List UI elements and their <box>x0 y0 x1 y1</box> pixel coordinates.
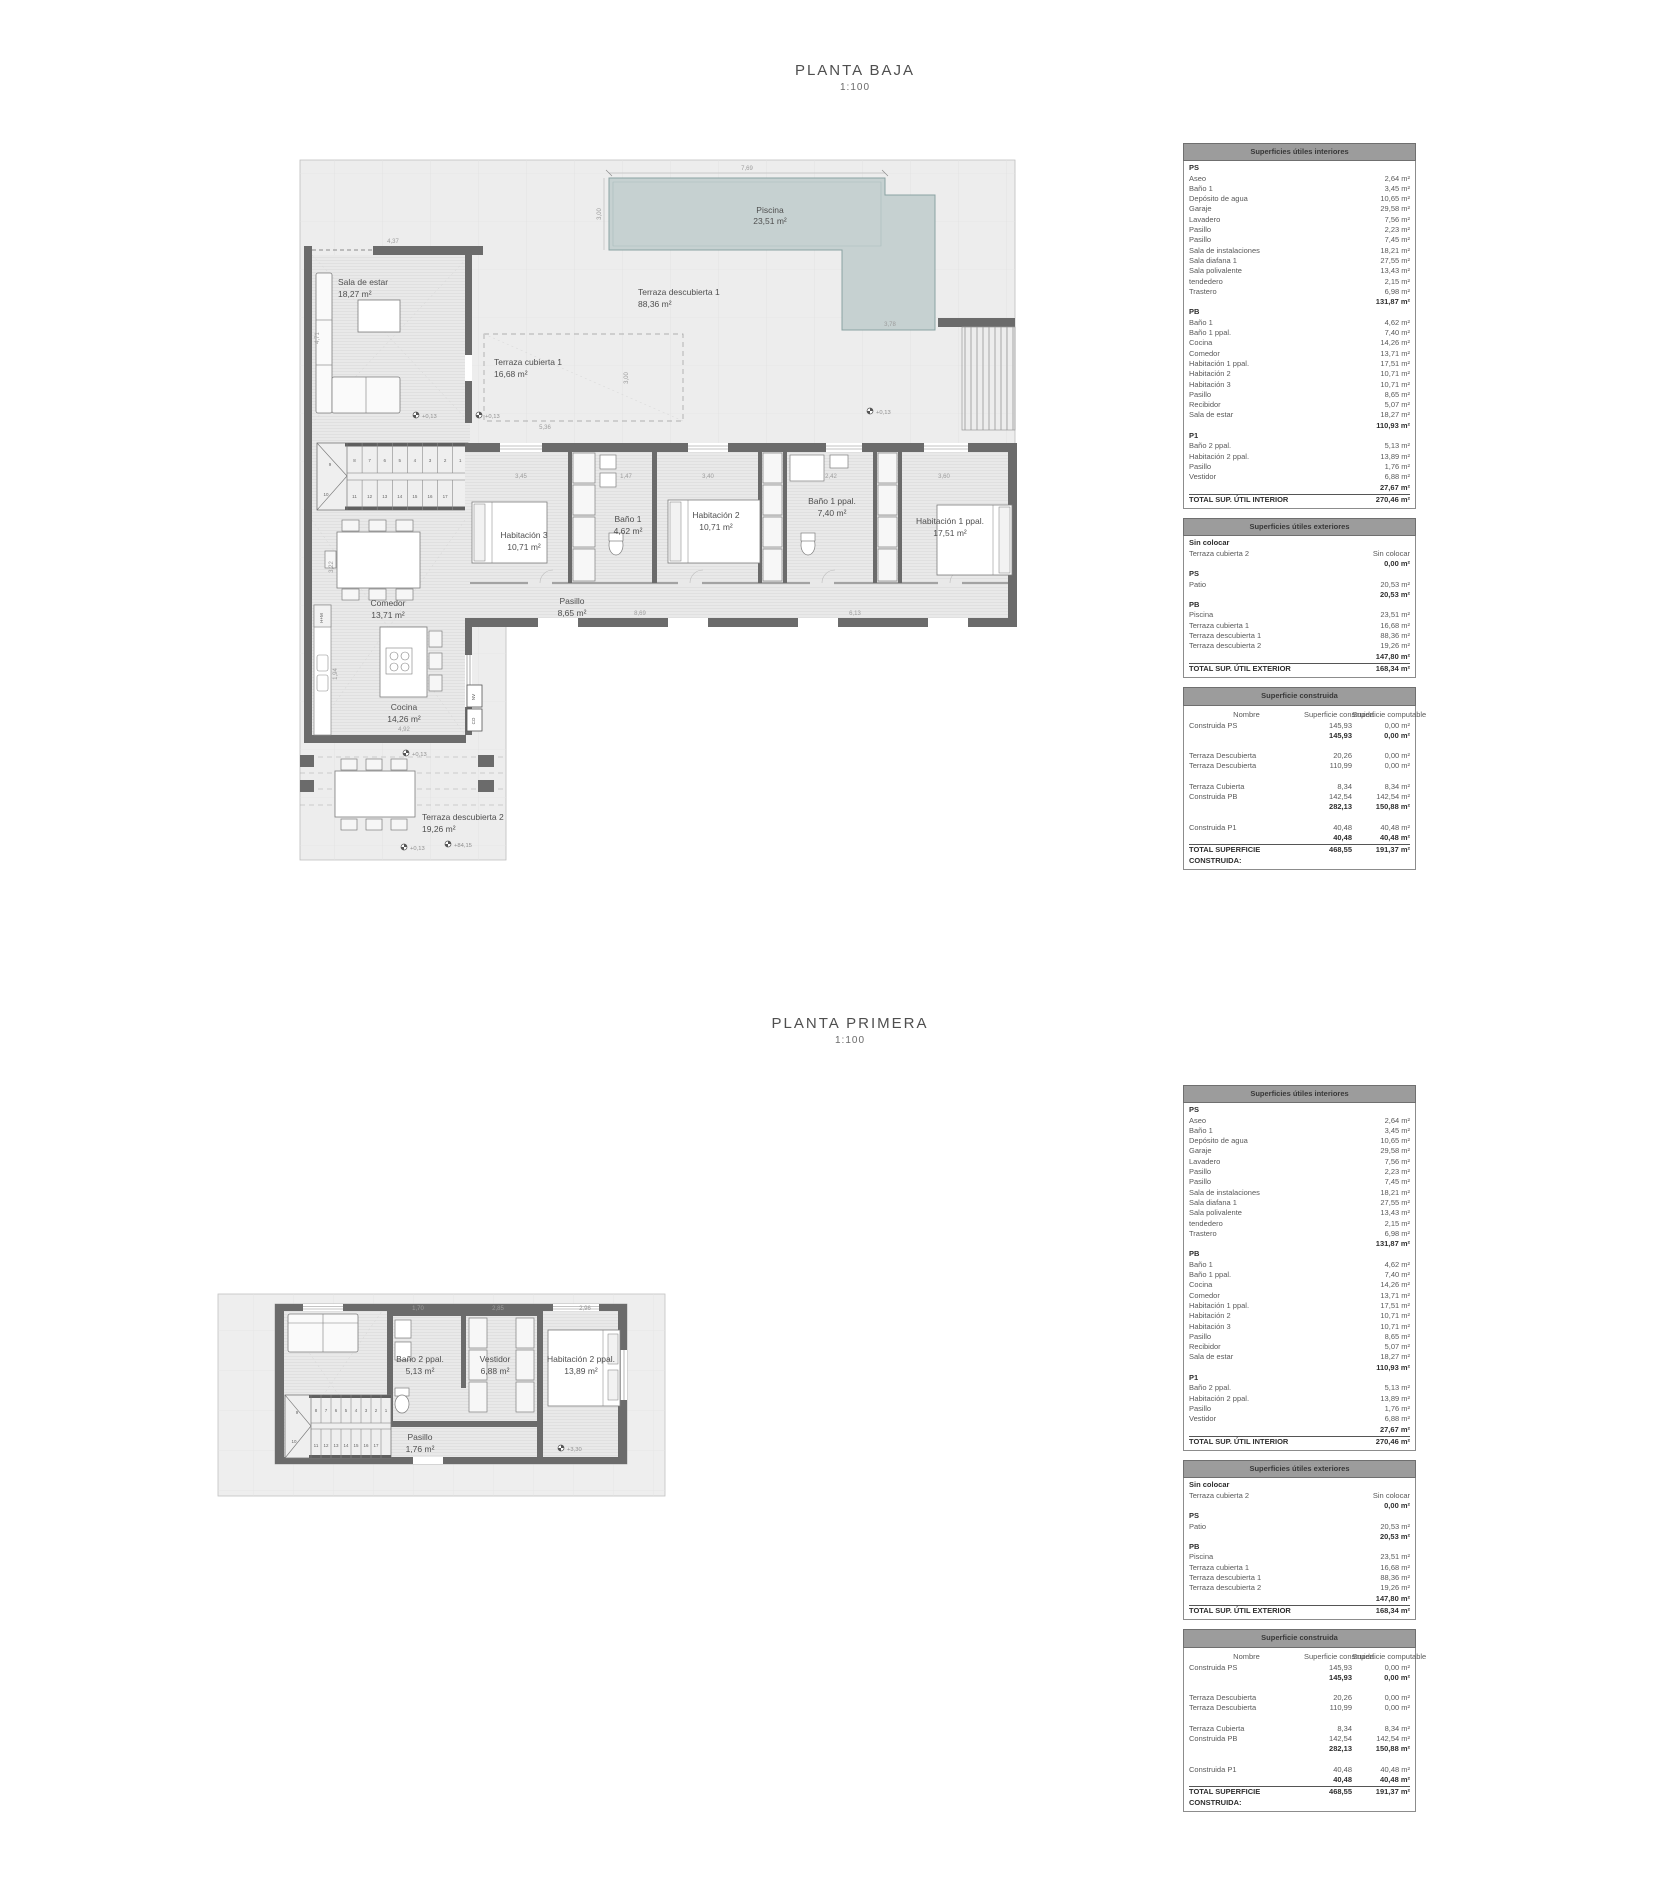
room-area-bano1: 4,62 m² <box>614 526 643 536</box>
table-title: Superficies útiles exteriores <box>1183 518 1416 536</box>
table-subtotal-row: 131,87 m² <box>1189 1239 1410 1249</box>
room-label-bano1ppal: Baño 1 ppal. <box>808 496 856 506</box>
table-section-row: Sin colocar <box>1189 538 1410 548</box>
table-body: Sin colocarTerraza cubierta 2Sin colocar… <box>1183 536 1416 678</box>
table-row: Pasillo7,45 m² <box>1189 235 1410 245</box>
elev-013: +0,13 <box>876 410 891 416</box>
table-row: Aseo2,64 m² <box>1189 174 1410 184</box>
bedroom-wing: Habitación 3 10,71 m² Baño 1 4,62 m² Hab… <box>465 443 1017 627</box>
table-body: Sin colocarTerraza cubierta 2Sin colocar… <box>1183 1478 1416 1620</box>
table-row: Terraza Descubierta20,260,00 m² <box>1189 1693 1410 1703</box>
dim-comedor-h: 3,22 <box>329 561 335 573</box>
table-subtotal-row: 20,53 m² <box>1189 1532 1410 1542</box>
room-label-td2: Terraza descubierta 2 <box>422 812 504 822</box>
table-row: Terraza Descubierta20,260,00 m² <box>1189 751 1410 761</box>
table-row: Pasillo2,23 m² <box>1189 225 1410 235</box>
table-section-row: PS <box>1189 163 1410 173</box>
room-label-bano1: Baño 1 <box>615 514 642 524</box>
plan-title-planta-baja: PLANTA BAJA <box>755 62 955 79</box>
table-subtotal-row: 0,00 m² <box>1189 559 1410 569</box>
room-label-pasillo-p1: Pasillo <box>407 1432 432 1442</box>
table-body: NombreSuperficie construidaSuperficie co… <box>1183 1648 1416 1812</box>
surface-table: Superficies útiles exterioresSin colocar… <box>1183 1460 1416 1620</box>
dim-hab1ppal-d: 6,13 <box>849 611 861 617</box>
stair-number: 14 <box>343 1443 349 1448</box>
room-label-td1: Terraza descubierta 1 <box>638 287 720 297</box>
table-section-row: PB <box>1189 600 1410 610</box>
dim-tc1-width: 5,36 <box>539 425 551 431</box>
table-total-row: TOTAL SUPERFICIE CONSTRUIDA:468,55191,37… <box>1189 844 1410 866</box>
room-label-piscina: Piscina <box>756 205 784 215</box>
table-row: Lavadero7,56 m² <box>1189 1157 1410 1167</box>
table-subtotal-row: 40,4840,48 m² <box>1189 1775 1410 1785</box>
surface-table: Superficie construidaNombreSuperficie co… <box>1183 1629 1416 1812</box>
planta-primera-drawing: 8765432111121314151617910 <box>213 1290 673 1505</box>
room-area-bano2ppal: 5,13 m² <box>406 1366 435 1376</box>
dim-bano1: 1,47 <box>620 474 632 480</box>
table-row: Terraza cubierta 2Sin colocar <box>1189 1491 1410 1501</box>
elev-013: +0,13 <box>412 752 427 758</box>
room-area-pasillo-p1: 1,76 m² <box>406 1444 435 1454</box>
table-subtotal-row: 20,53 m² <box>1189 590 1410 600</box>
wall-bottom-wing <box>306 735 466 743</box>
table-subtotal-row: 110,93 m² <box>1189 421 1410 431</box>
table-column-headers: NombreSuperficie construidaSuperficie co… <box>1189 1650 1410 1663</box>
table-row: Habitación 310,71 m² <box>1189 380 1410 390</box>
stair-number: 11 <box>352 494 357 499</box>
table-row: Trastero6,98 m² <box>1189 1229 1410 1239</box>
elev-013: +0,13 <box>422 414 437 420</box>
room-label-hab2: Habitación 2 <box>692 510 740 520</box>
table-row: Construida P140,4840,48 m² <box>1189 1765 1410 1775</box>
table-column-headers: NombreSuperficie construidaSuperficie co… <box>1189 708 1410 721</box>
table-row: Terraza descubierta 188,36 m² <box>1189 631 1410 641</box>
room-area-cocina: 14,26 m² <box>387 714 421 724</box>
table-total-row: TOTAL SUP. ÚTIL EXTERIOR168,34 m² <box>1189 663 1410 674</box>
table-row: Habitación 2 ppal.13,89 m² <box>1189 452 1410 462</box>
table-row: Aseo2,64 m² <box>1189 1116 1410 1126</box>
table-subtotal-row: 0,00 m² <box>1189 1501 1410 1511</box>
table-subtotal-row: 27,67 m² <box>1189 1425 1410 1435</box>
table-row: Construida PS145,930,00 m² <box>1189 1663 1410 1673</box>
table-row: Patio20,53 m² <box>1189 580 1410 590</box>
table-body: PSAseo2,64 m²Baño 13,45 m²Depósito de ag… <box>1183 161 1416 509</box>
table-section-row: P1 <box>1189 1373 1410 1383</box>
table-section-row: Sin colocar <box>1189 1480 1410 1490</box>
table-row: tendedero2,15 m² <box>1189 1219 1410 1229</box>
dim-counter-h: 1,94 <box>333 668 339 680</box>
table-section-row: PS <box>1189 569 1410 579</box>
room-area-piscina: 23,51 m² <box>753 216 787 226</box>
room-area-hab2ppal: 13,89 m² <box>564 1366 598 1376</box>
table-row: Sala de estar18,27 m² <box>1189 410 1410 420</box>
surface-tables-top: Superficies útiles interioresPSAseo2,64 … <box>1183 143 1416 879</box>
surface-table: Superficie construidaNombreSuperficie co… <box>1183 687 1416 870</box>
table-title: Superficie construida <box>1183 1629 1416 1647</box>
table-title: Superficies útiles exteriores <box>1183 1460 1416 1478</box>
table-row: Piscina23,51 m² <box>1189 1552 1410 1562</box>
elev-330: +3,30 <box>567 1447 582 1453</box>
stair-number: 12 <box>367 494 373 499</box>
stair-number: 11 <box>314 1443 319 1448</box>
table-section-row: P1 <box>1189 431 1410 441</box>
table-row: Comedor13,71 m² <box>1189 349 1410 359</box>
dim-sala-width: 4,37 <box>387 239 399 245</box>
dim-tc1-height: 3,00 <box>624 372 630 384</box>
table-row: Sala de instalaciones18,21 m² <box>1189 1188 1410 1198</box>
room-area-tc1: 16,68 m² <box>494 369 528 379</box>
stair-number: 14 <box>397 494 403 499</box>
room-area-hab2: 10,71 m² <box>699 522 733 532</box>
room-area-bano1ppal: 7,40 m² <box>818 508 847 518</box>
table-body: NombreSuperficie construidaSuperficie co… <box>1183 706 1416 870</box>
room-label-hab1ppal: Habitación 1 ppal. <box>916 516 984 526</box>
table-row: Terraza Descubierta110,990,00 m² <box>1189 1703 1410 1713</box>
table-row: Baño 13,45 m² <box>1189 1126 1410 1136</box>
surface-tables-bottom: Superficies útiles interioresPSAseo2,64 … <box>1183 1085 1416 1821</box>
plan-title-planta-primera: PLANTA PRIMERA <box>750 1015 950 1032</box>
dim-cocina-w: 4,92 <box>398 727 410 733</box>
table-row: Terraza Cubierta8,348,34 m² <box>1189 1724 1410 1734</box>
table-row: Sala diafana 127,55 m² <box>1189 1198 1410 1208</box>
surface-table: Superficies útiles interioresPSAseo2,64 … <box>1183 1085 1416 1451</box>
stair-number: 13 <box>333 1443 339 1448</box>
room-area-td1: 88,36 m² <box>638 299 672 309</box>
table-total-row: TOTAL SUP. ÚTIL INTERIOR270,46 m² <box>1189 494 1410 505</box>
surface-table: Superficies útiles interioresPSAseo2,64 … <box>1183 143 1416 509</box>
table-row: Sala de estar18,27 m² <box>1189 1352 1410 1362</box>
table-row: tendedero2,15 m² <box>1189 277 1410 287</box>
table-section-row: PB <box>1189 1542 1410 1552</box>
stair-number: 16 <box>427 494 433 499</box>
table-row: Pasillo8,65 m² <box>1189 1332 1410 1342</box>
dim-pool-arm: 3,78 <box>884 322 896 328</box>
elev-013: +0,13 <box>485 414 500 420</box>
dim-pool-width: 7,69 <box>741 166 753 172</box>
dim-pasillo: 8,69 <box>634 611 646 617</box>
table-section-row: PS <box>1189 1511 1410 1521</box>
table-row: Terraza descubierta 188,36 m² <box>1189 1573 1410 1583</box>
table-subtotal-row: 145,930,00 m² <box>1189 1673 1410 1683</box>
room-area-td2: 19,26 m² <box>422 824 456 834</box>
stair-number: 17 <box>373 1443 379 1448</box>
table-row: Construida PB142,54142,54 m² <box>1189 1734 1410 1744</box>
table-row: Vestidor6,88 m² <box>1189 472 1410 482</box>
table-row: Lavadero7,56 m² <box>1189 215 1410 225</box>
planta-baja-drawing: 7,69 3,00 3,78 Piscina 23,51 m² Terraza … <box>238 125 1028 875</box>
kitchen-island <box>380 627 442 697</box>
coffee-table <box>358 300 400 332</box>
table-section-row: PB <box>1189 307 1410 317</box>
table-row: Sala polivalente13,43 m² <box>1189 266 1410 276</box>
first-floor-building: 8765432111121314151617910 <box>275 1304 627 1464</box>
room-label-tc1: Terraza cubierta 1 <box>494 357 562 367</box>
dim-p1-2: 2,85 <box>492 1306 504 1312</box>
table-row: Sala polivalente13,43 m² <box>1189 1208 1410 1218</box>
table-subtotal-row: 282,13150,88 m² <box>1189 1744 1410 1754</box>
plan-scale-planta-baja: 1:100 <box>755 82 955 93</box>
table-row: Baño 1 ppal.7,40 m² <box>1189 328 1410 338</box>
dim-p1-1: 1,70 <box>412 1306 424 1312</box>
table-row: Terraza Cubierta8,348,34 m² <box>1189 782 1410 792</box>
stair-number: 10 <box>323 492 329 497</box>
table-row: Depósito de agua10,65 m² <box>1189 1136 1410 1146</box>
table-row: Cocina14,26 m² <box>1189 1280 1410 1290</box>
table-row: Baño 13,45 m² <box>1189 184 1410 194</box>
table-row: Terraza cubierta 2Sin colocar <box>1189 549 1410 559</box>
wall-left <box>304 246 312 743</box>
table-row: Baño 14,62 m² <box>1189 318 1410 328</box>
table-row: Terraza cubierta 116,68 m² <box>1189 621 1410 631</box>
table-body: PSAseo2,64 m²Baño 13,45 m²Depósito de ag… <box>1183 1103 1416 1451</box>
table-row: Construida PB142,54142,54 m² <box>1189 792 1410 802</box>
dim-sala-height: 4,71 <box>315 332 321 344</box>
dim-hab3: 3,45 <box>515 474 527 480</box>
table-title: Superficie construida <box>1183 687 1416 705</box>
table-row: Pasillo7,45 m² <box>1189 1177 1410 1187</box>
table-subtotal-row: 131,87 m² <box>1189 297 1410 307</box>
table-row: Habitación 210,71 m² <box>1189 1311 1410 1321</box>
table-subtotal-row: 282,13150,88 m² <box>1189 802 1410 812</box>
room-label-sala: Sala de estar <box>338 277 388 287</box>
table-total-row: TOTAL SUPERFICIE CONSTRUIDA:468,55191,37… <box>1189 1786 1410 1808</box>
table-subtotal-row: 145,930,00 m² <box>1189 731 1410 741</box>
table-row: Sala diafana 127,55 m² <box>1189 256 1410 266</box>
stair-number: 16 <box>363 1443 369 1448</box>
table-row: Baño 1 ppal.7,40 m² <box>1189 1270 1410 1280</box>
table-subtotal-row: 40,4840,48 m² <box>1189 833 1410 843</box>
table-row: Terraza Descubierta110,990,00 m² <box>1189 761 1410 771</box>
wall-top-sala <box>373 246 483 255</box>
table-row: Habitación 2 ppal.13,89 m² <box>1189 1394 1410 1404</box>
table-row: Pasillo2,23 m² <box>1189 1167 1410 1177</box>
elev-013: +0,13 <box>410 846 425 852</box>
room-area-hab1ppal: 17,51 m² <box>933 528 967 538</box>
room-label-cocina: Cocina <box>391 702 418 712</box>
outdoor-table <box>335 759 415 830</box>
table-row: Vestidor6,88 m² <box>1189 1414 1410 1424</box>
table-row: Trastero6,98 m² <box>1189 287 1410 297</box>
table-subtotal-row: 147,80 m² <box>1189 652 1410 662</box>
dim-p1-3: 2,96 <box>579 1306 591 1312</box>
room-label-pasillo: Pasillo <box>559 596 584 606</box>
room-label-vestidor: Vestidor <box>480 1354 511 1364</box>
elev-8415: +84,15 <box>454 843 472 849</box>
dim-hab1ppal: 3,60 <box>938 474 950 480</box>
table-row: Recibidor5,07 m² <box>1189 400 1410 410</box>
staircase-upper: 8765432111121314151617910 <box>285 1395 391 1458</box>
kitchen-counter: H+M <box>314 605 331 735</box>
table-row: Habitación 310,71 m² <box>1189 1322 1410 1332</box>
table-subtotal-row: 110,93 m² <box>1189 1363 1410 1373</box>
dining-table <box>325 520 420 600</box>
table-total-row: TOTAL SUP. ÚTIL EXTERIOR168,34 m² <box>1189 1605 1410 1616</box>
table-row: Pasillo1,76 m² <box>1189 462 1410 472</box>
room-label-comedor: Comedor <box>371 598 406 608</box>
table-row: Pasillo8,65 m² <box>1189 390 1410 400</box>
room-area-hab3: 10,71 m² <box>507 542 541 552</box>
dim-pool-height: 3,00 <box>597 208 603 220</box>
left-wing: Sala de estar 18,27 m² 4,37 4,71 Recibid… <box>304 239 483 743</box>
stair-number: 13 <box>382 494 388 499</box>
table-row: Cocina14,26 m² <box>1189 338 1410 348</box>
shaft-label-nv: NV <box>471 694 476 700</box>
table-row: Habitación 210,71 m² <box>1189 369 1410 379</box>
room-label-hab3: Habitación 3 <box>500 530 548 540</box>
table-row: Garaje29,58 m² <box>1189 204 1410 214</box>
table-title: Superficies útiles interiores <box>1183 1085 1416 1103</box>
dim-bano1ppal: 2,42 <box>825 474 837 480</box>
table-row: Comedor13,71 m² <box>1189 1291 1410 1301</box>
table-row: Construida P140,4840,48 m² <box>1189 823 1410 833</box>
room-area-pasillo: 8,65 m² <box>558 608 587 618</box>
stair-number: 12 <box>323 1443 329 1448</box>
table-row: Patio20,53 m² <box>1189 1522 1410 1532</box>
table-row: Pasillo1,76 m² <box>1189 1404 1410 1414</box>
stair-number: 10 <box>291 1439 297 1444</box>
stair-number: 15 <box>412 494 418 499</box>
sofa-upper <box>288 1314 358 1352</box>
table-row: Terraza descubierta 219,26 m² <box>1189 641 1410 651</box>
table-row: Garaje29,58 m² <box>1189 1146 1410 1156</box>
table-row: Sala de instalaciones18,21 m² <box>1189 246 1410 256</box>
table-row: Construida PS145,930,00 m² <box>1189 721 1410 731</box>
table-row: Terraza cubierta 116,68 m² <box>1189 1563 1410 1573</box>
table-subtotal-row: 27,67 m² <box>1189 483 1410 493</box>
appliance-label: H+M <box>319 613 324 623</box>
stair-number: 17 <box>443 494 449 499</box>
staircase: 8765432111121314151617910 <box>317 443 468 510</box>
room-area-vestidor: 6,88 m² <box>481 1366 510 1376</box>
room-area-comedor: 13,71 m² <box>371 610 405 620</box>
plan-scale-planta-primera: 1:100 <box>750 1035 950 1046</box>
room-label-bano2ppal: Baño 2 ppal. <box>396 1354 444 1364</box>
table-subtotal-row: 147,80 m² <box>1189 1594 1410 1604</box>
drawing-sheet: PLANTA BAJA 1:100 PLANTA PRIMERA 1:100 <box>0 0 1679 1892</box>
surface-table: Superficies útiles exterioresSin colocar… <box>1183 518 1416 678</box>
table-row: Recibidor5,07 m² <box>1189 1342 1410 1352</box>
table-title: Superficies útiles interiores <box>1183 143 1416 161</box>
table-row: Terraza descubierta 219,26 m² <box>1189 1583 1410 1593</box>
stair-number: 15 <box>353 1443 359 1448</box>
dim-hab2: 3,40 <box>702 474 714 480</box>
table-section-row: PS <box>1189 1105 1410 1115</box>
table-row: Baño 2 ppal.5,13 m² <box>1189 441 1410 451</box>
wall-right-sala <box>465 255 472 423</box>
shaft-label-co: CO <box>471 717 476 724</box>
table-section-row: PB <box>1189 1249 1410 1259</box>
table-row: Habitación 1 ppal.17,51 m² <box>1189 359 1410 369</box>
room-label-hab2ppal: Habitación 2 ppal. <box>547 1354 615 1364</box>
table-row: Baño 2 ppal.5,13 m² <box>1189 1383 1410 1393</box>
room-area-sala: 18,27 m² <box>338 289 372 299</box>
table-row: Piscina23,51 m² <box>1189 610 1410 620</box>
table-row: Habitación 1 ppal.17,51 m² <box>1189 1301 1410 1311</box>
table-row: Baño 14,62 m² <box>1189 1260 1410 1270</box>
table-row: Depósito de agua10,65 m² <box>1189 194 1410 204</box>
table-total-row: TOTAL SUP. ÚTIL INTERIOR270,46 m² <box>1189 1436 1410 1447</box>
